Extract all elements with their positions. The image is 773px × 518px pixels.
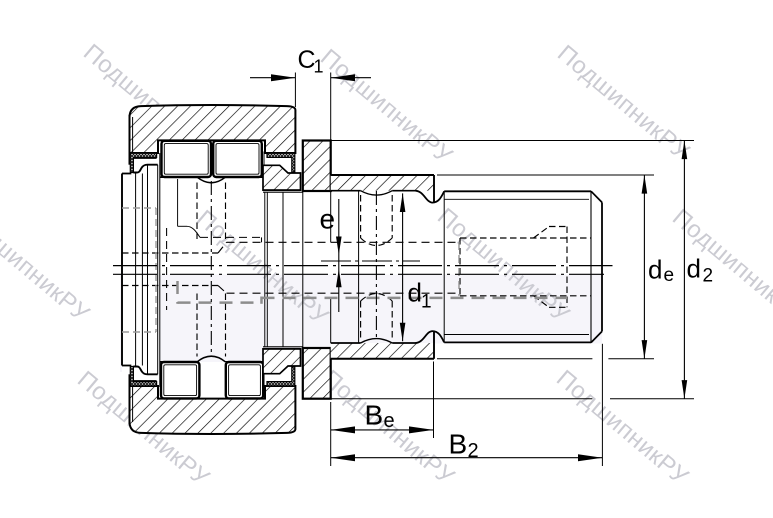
svg-text:e: e <box>664 265 675 286</box>
svg-text:B: B <box>449 429 468 460</box>
svg-text:2: 2 <box>703 266 714 287</box>
svg-text:d: d <box>408 278 422 308</box>
svg-text:1: 1 <box>314 57 324 77</box>
svg-text:d: d <box>648 255 662 285</box>
svg-text:2: 2 <box>468 440 479 462</box>
svg-text:1: 1 <box>421 292 432 313</box>
svg-text:e: e <box>384 410 395 432</box>
svg-text:e: e <box>320 204 336 235</box>
svg-text:d: d <box>687 254 701 284</box>
svg-text:B: B <box>365 400 384 431</box>
